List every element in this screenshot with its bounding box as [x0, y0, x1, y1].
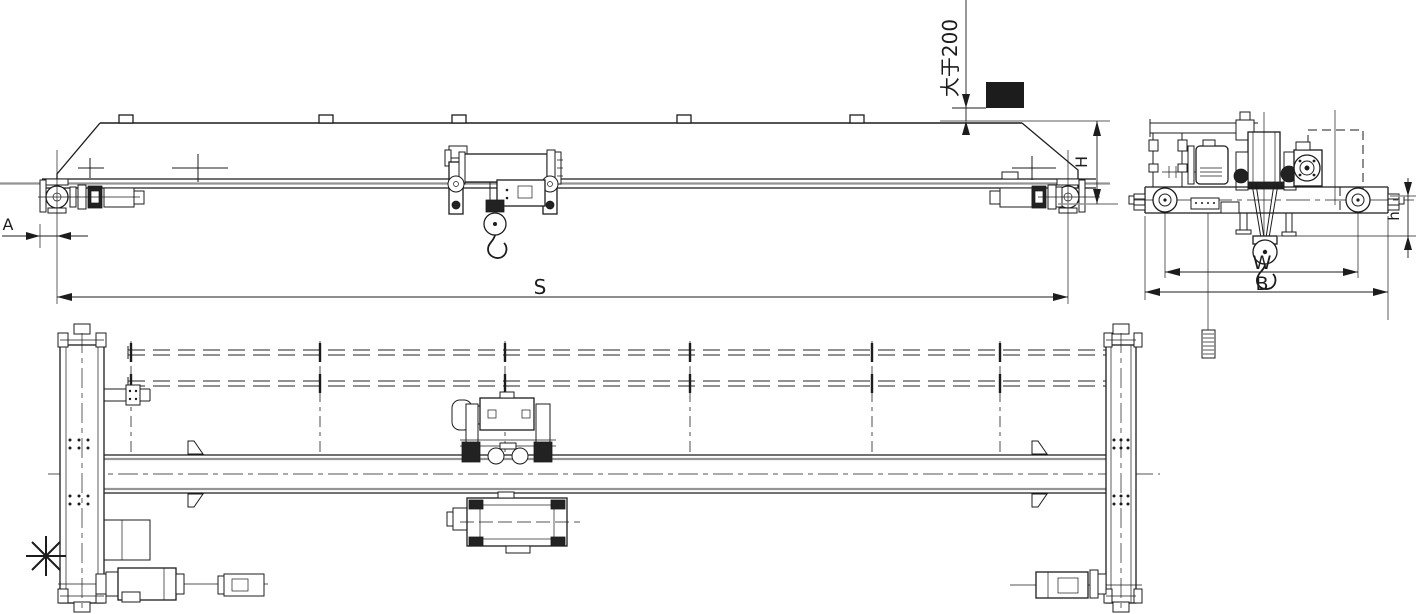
- girder-section: [1234, 132, 1297, 190]
- side-view: W B h: [1129, 110, 1416, 358]
- dim-span: S: [57, 275, 1068, 301]
- hoist-plan: [447, 492, 580, 553]
- end-truck-left-elevation: [38, 150, 228, 304]
- trolley-motor-side: [1188, 140, 1228, 184]
- dim-approach: A: [2, 215, 88, 248]
- hoist-mechanism-side: [1294, 142, 1322, 186]
- width-label: B: [1255, 273, 1268, 295]
- lifting-lug: [850, 115, 864, 123]
- beam-wheel-right: [1346, 188, 1370, 212]
- lifting-lug: [677, 115, 691, 123]
- end-truck-right-plan: [1104, 324, 1142, 613]
- reference-star: [26, 536, 66, 576]
- wheelbase-label: W: [1253, 252, 1272, 274]
- lifting-lug: [119, 115, 133, 123]
- crane-technical-drawing: 大于200 H S A: [0, 0, 1419, 614]
- drawing-sheet: 大于200 H S A: [0, 0, 1419, 614]
- beam-wheel-left: [1153, 188, 1177, 212]
- girder-plan: [48, 441, 1160, 507]
- span-label: S: [534, 275, 547, 299]
- hook-label: h: [1385, 211, 1403, 221]
- rail-support-bracket: [104, 385, 150, 405]
- obstacle-block: [986, 82, 1024, 108]
- lifting-lug: [319, 115, 333, 123]
- pendant-control: [1202, 213, 1215, 358]
- dim-clearance: 大于200: [938, 0, 1110, 135]
- dim-hook: h: [1278, 178, 1416, 258]
- trolley-plan: [452, 392, 556, 464]
- end-beam-section: [1129, 187, 1414, 236]
- clearance-label: 大于200: [938, 19, 962, 97]
- festoon-rail-plan: [128, 346, 1106, 390]
- approach-label: A: [3, 215, 14, 234]
- plan-view: [26, 324, 1160, 613]
- front-view: 大于200 H S A: [0, 0, 1118, 304]
- lifting-lug: [452, 115, 466, 123]
- cable-hangers: [131, 341, 1000, 456]
- height-label: H: [1072, 156, 1091, 168]
